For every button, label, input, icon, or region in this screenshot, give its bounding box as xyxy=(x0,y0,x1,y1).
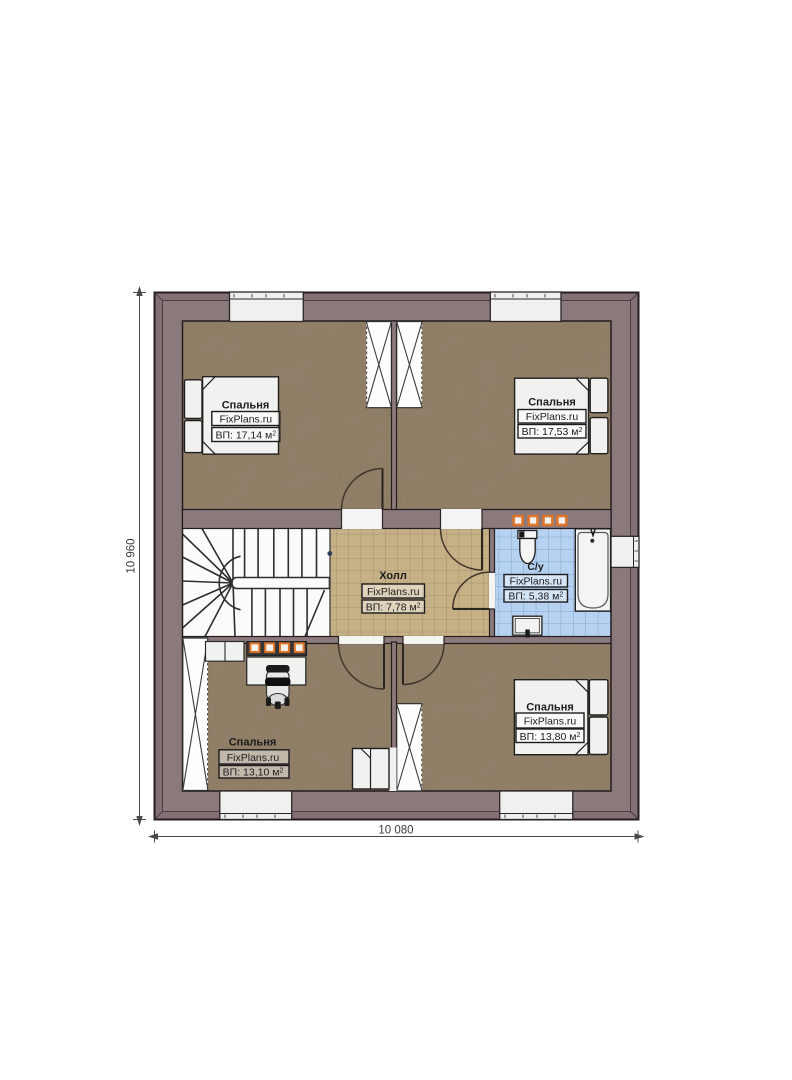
svg-text:Спальня: Спальня xyxy=(526,702,574,714)
svg-text:С/у: С/у xyxy=(527,561,544,573)
svg-text:FixPlans.ru: FixPlans.ru xyxy=(510,576,563,588)
svg-text:ВП: 17,53 м2: ВП: 17,53 м2 xyxy=(522,426,583,438)
svg-text:ВП: 13,80 м2: ВП: 13,80 м2 xyxy=(520,731,581,743)
svg-text:Спальня: Спальня xyxy=(229,737,277,749)
svg-text:ВП: 13,10 м2: ВП: 13,10 м2 xyxy=(223,767,284,779)
svg-text:Спальня: Спальня xyxy=(528,397,576,409)
svg-text:ВП: 17,14 м2: ВП: 17,14 м2 xyxy=(215,429,276,441)
svg-text:FixPlans.ru: FixPlans.ru xyxy=(524,715,577,727)
svg-text:FixPlans.ru: FixPlans.ru xyxy=(220,413,273,425)
svg-text:10 080: 10 080 xyxy=(378,825,413,837)
svg-text:FixPlans.ru: FixPlans.ru xyxy=(227,752,280,764)
svg-text:ВП: 7,78 м2: ВП: 7,78 м2 xyxy=(366,601,421,613)
svg-text:Спальня: Спальня xyxy=(222,400,270,412)
svg-text:FixPlans.ru: FixPlans.ru xyxy=(526,411,579,423)
svg-text:FixPlans.ru: FixPlans.ru xyxy=(367,586,420,598)
svg-text:Холл: Холл xyxy=(379,570,407,582)
svg-text:ВП: 5,38 м2: ВП: 5,38 м2 xyxy=(508,591,563,603)
svg-text:10 960: 10 960 xyxy=(126,538,138,573)
